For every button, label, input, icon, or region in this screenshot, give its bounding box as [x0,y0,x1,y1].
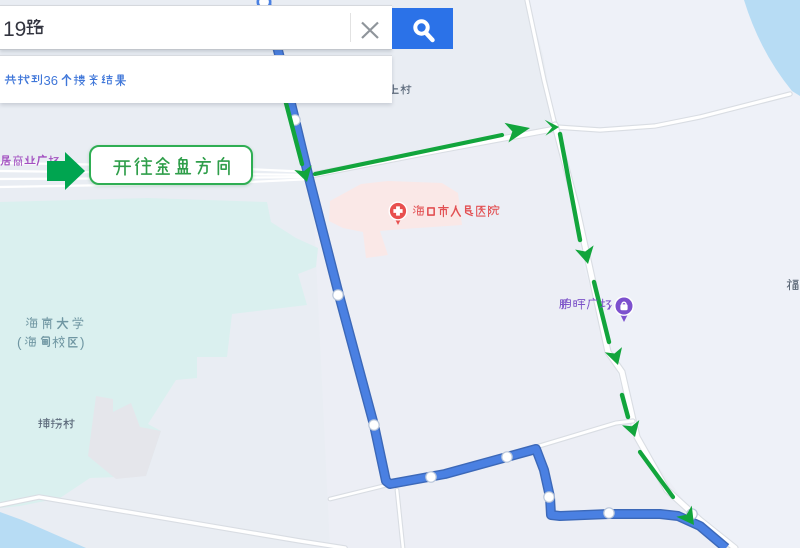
svg-text:19: 19 [3,18,26,41]
svg-text:36: 36 [44,73,58,88]
